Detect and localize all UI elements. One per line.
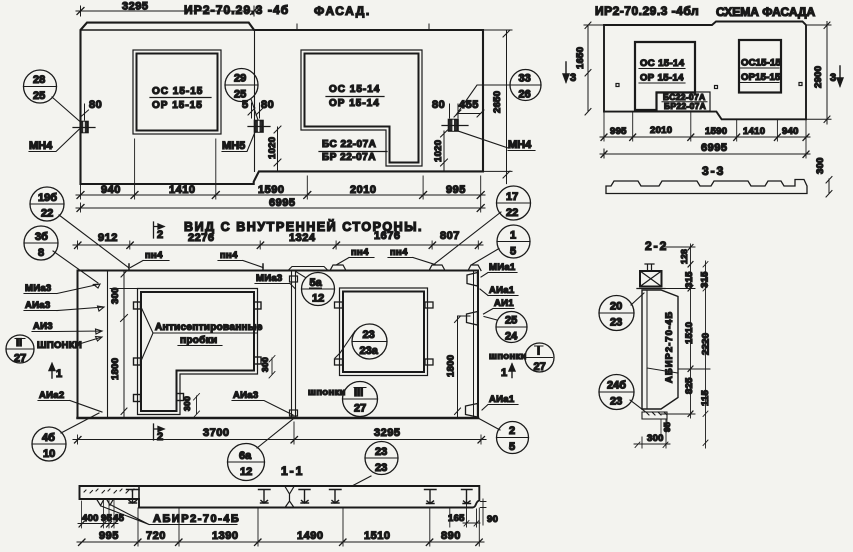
svg-text:4б: 4б [42,432,55,444]
svg-text:20: 20 [610,301,622,313]
svg-text:45: 45 [113,513,125,524]
svg-text:пробки: пробки [180,334,217,346]
svg-text:315: 315 [700,271,711,288]
svg-text:22: 22 [506,207,518,219]
svg-text:АБИР2-70-4Б: АБИР2-70-4Б [153,513,240,525]
svg-text:940: 940 [101,184,121,196]
svg-text:300: 300 [815,157,826,174]
svg-text:1410: 1410 [743,126,765,137]
svg-text:АИа2: АИа2 [39,390,64,401]
svg-text:300: 300 [110,287,121,304]
svg-text:III: III [354,387,363,399]
svg-text:БР 22-07А: БР 22-07А [322,152,376,163]
svg-text:5: 5 [510,246,516,258]
svg-text:ОС 15-14: ОС 15-14 [640,58,685,69]
svg-text:128: 128 [679,249,689,264]
svg-text:1590: 1590 [705,126,727,137]
svg-text:8: 8 [38,247,44,259]
svg-text:28: 28 [33,74,45,86]
svg-text:МИа1: МИа1 [489,262,516,273]
svg-text:ОР 15-14: ОР 15-14 [640,73,684,84]
svg-text:26: 26 [519,89,531,101]
svg-text:940: 940 [782,126,799,137]
svg-text:1800: 1800 [110,358,121,380]
svg-text:995: 995 [446,184,466,196]
svg-text:5: 5 [509,441,515,453]
svg-text:2: 2 [157,431,163,443]
svg-text:МИа3: МИа3 [25,283,52,294]
svg-text:12: 12 [240,466,252,478]
svg-text:23: 23 [375,446,387,458]
svg-text:ОР 15-14: ОР 15-14 [329,98,380,109]
svg-text:95: 95 [662,422,672,432]
svg-text:995: 995 [610,126,627,137]
svg-text:АИа3: АИа3 [233,390,258,401]
svg-text:25: 25 [33,90,45,102]
svg-text:6995: 6995 [269,197,295,209]
svg-text:ОР 15-15: ОР 15-15 [152,100,203,111]
svg-text:3700: 3700 [203,427,229,439]
svg-text:24б: 24б [607,380,626,392]
svg-text:23: 23 [610,396,622,408]
svg-text:1: 1 [56,368,62,380]
svg-text:АИа1: АИа1 [489,285,515,296]
svg-text:23: 23 [363,329,375,341]
svg-text:912: 912 [98,232,118,244]
svg-text:2-2: 2-2 [645,239,668,253]
svg-text:ИР2-70.29.3 -4бл: ИР2-70.29.3 -4бл [595,4,699,18]
svg-text:МН4: МН4 [29,140,53,152]
svg-text:165: 165 [448,513,465,524]
svg-text:2276: 2276 [188,232,214,244]
svg-text:1390: 1390 [212,530,238,542]
svg-text:АИа1: АИа1 [489,394,515,405]
svg-text:пн4: пн4 [220,250,238,261]
svg-text:МИа3: МИа3 [256,273,283,284]
svg-text:995: 995 [99,530,119,542]
svg-text:23: 23 [375,462,387,474]
svg-text:17: 17 [506,191,518,203]
svg-text:МН4: МН4 [508,139,532,151]
svg-text:22: 22 [41,208,53,220]
svg-text:1020: 1020 [433,140,444,162]
svg-text:1490: 1490 [297,530,323,542]
svg-text:3295: 3295 [374,427,400,439]
svg-text:300: 300 [647,433,664,444]
svg-text:2: 2 [509,425,515,437]
svg-text:80: 80 [432,99,445,111]
svg-text:Антисептированные: Антисептированные [155,322,263,333]
svg-text:пн4: пн4 [351,247,369,258]
svg-text:пн4: пн4 [145,250,163,261]
svg-text:12: 12 [312,293,324,305]
svg-text:2010: 2010 [350,184,376,196]
svg-text:шпонки: шпонки [489,351,527,362]
svg-text:1510: 1510 [684,322,695,344]
svg-text:2: 2 [157,229,163,241]
svg-text:3295: 3295 [122,1,148,13]
svg-text:1676: 1676 [374,230,400,242]
svg-text:400: 400 [82,513,99,524]
svg-text:шпонки: шпонки [308,387,346,398]
svg-text:1590: 1590 [258,184,284,196]
svg-text:1-1: 1-1 [281,464,304,478]
svg-text:ОС 15-15: ОС 15-15 [152,86,203,97]
svg-text:807: 807 [440,230,460,242]
svg-text:33: 33 [519,73,531,85]
svg-text:300: 300 [182,396,192,411]
svg-text:2900: 2900 [813,66,824,88]
svg-text:1324: 1324 [289,232,316,244]
svg-text:29: 29 [234,73,246,85]
svg-text:МН5: МН5 [222,140,245,152]
svg-text:27: 27 [534,361,546,373]
svg-text:пн4: пн4 [390,247,408,258]
svg-text:3-3: 3-3 [702,164,725,178]
svg-text:95: 95 [101,513,113,524]
svg-text:25: 25 [505,315,517,327]
svg-text:1800: 1800 [446,355,457,377]
svg-text:315: 315 [684,271,695,288]
svg-text:6995: 6995 [701,142,727,154]
svg-text:25: 25 [234,89,246,101]
svg-text:455: 455 [459,99,479,111]
svg-text:АИ3: АИ3 [33,321,53,332]
svg-text:ШПОНКИ: ШПОНКИ [37,340,82,351]
svg-text:АИа3: АИа3 [25,300,50,311]
svg-text:890: 890 [441,530,461,542]
svg-text:1650: 1650 [575,47,586,69]
svg-text:3: 3 [830,72,836,84]
svg-text:БР22-07А: БР22-07А [664,101,706,111]
svg-text:ФАСАД.: ФАСАД. [314,4,371,18]
svg-text:1410: 1410 [169,184,195,196]
svg-text:5а: 5а [310,277,323,289]
svg-text:90: 90 [487,514,498,525]
svg-text:24: 24 [505,331,518,343]
svg-text:ИР2-70.29.3 -4б: ИР2-70.29.3 -4б [184,3,289,17]
svg-text:80: 80 [89,99,102,111]
svg-text:ОР15-15: ОР15-15 [741,72,781,83]
svg-text:ОС 15-14: ОС 15-14 [329,84,380,95]
svg-text:23: 23 [610,317,622,329]
svg-text:23а: 23а [360,345,379,357]
svg-text:80: 80 [261,99,274,111]
svg-text:I: I [537,346,540,358]
svg-text:1510: 1510 [364,530,390,542]
svg-text:19б: 19б [38,192,57,204]
svg-text:1: 1 [510,230,516,242]
svg-text:27: 27 [354,403,366,415]
svg-text:СХЕМА ФАСАДА: СХЕМА ФАСАДА [716,5,816,19]
svg-text:ОС15-15: ОС15-15 [741,58,781,69]
svg-text:6а: 6а [239,450,252,462]
svg-text:3: 3 [570,72,576,84]
svg-text:1020: 1020 [267,137,278,159]
svg-text:10: 10 [43,448,55,460]
svg-text:3б: 3б [35,231,48,243]
svg-text:1: 1 [501,367,507,379]
svg-text:2010: 2010 [650,125,672,136]
svg-text:27: 27 [14,353,26,365]
svg-text:АИ1: АИ1 [494,298,514,309]
svg-text:2650: 2650 [492,91,503,113]
svg-text:300: 300 [260,357,270,372]
svg-text:825: 825 [684,377,695,394]
svg-text:АБИР2-70-4Б: АБИР2-70-4Б [664,311,675,383]
svg-text:720: 720 [146,530,166,542]
svg-text:БС 22-07А: БС 22-07А [322,139,376,150]
svg-text:2220: 2220 [701,333,712,355]
